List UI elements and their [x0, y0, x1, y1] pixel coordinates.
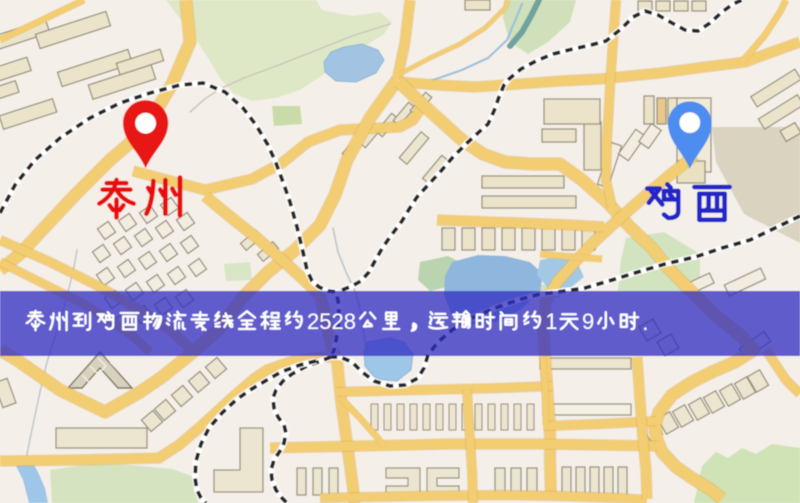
svg-text:2528: 2528 — [307, 309, 356, 334]
svg-text:1: 1 — [545, 309, 557, 334]
svg-text:9: 9 — [582, 309, 594, 334]
svg-text:.: . — [642, 310, 648, 335]
